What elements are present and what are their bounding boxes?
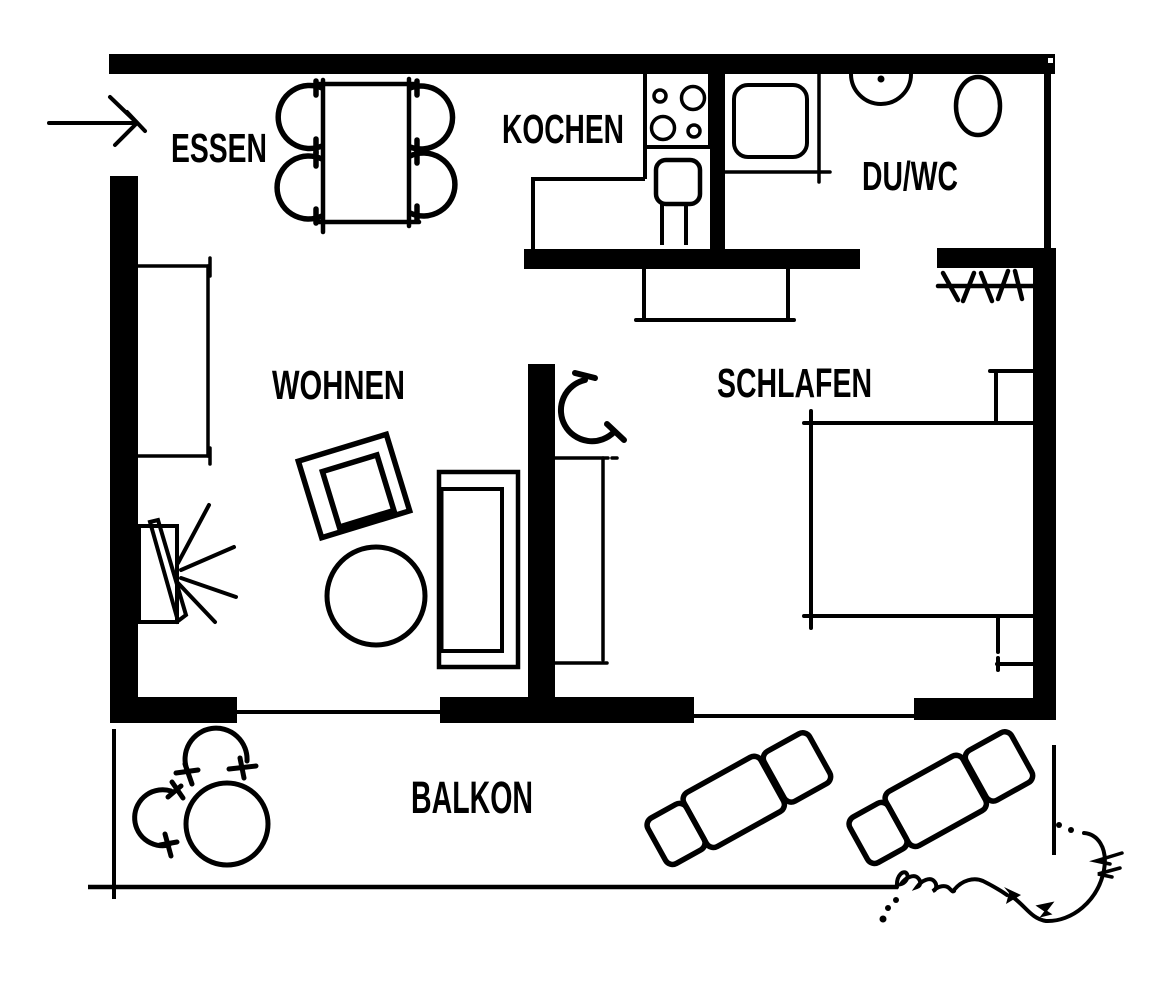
svg-text:KOCHEN: KOCHEN	[502, 106, 624, 152]
svg-text:WOHNEN: WOHNEN	[272, 362, 405, 408]
svg-text:DU/WC: DU/WC	[862, 153, 958, 199]
svg-text:BALKON: BALKON	[411, 772, 533, 823]
svg-text:SCHLAFEN: SCHLAFEN	[717, 360, 872, 406]
svg-text:ESSEN: ESSEN	[171, 125, 267, 171]
